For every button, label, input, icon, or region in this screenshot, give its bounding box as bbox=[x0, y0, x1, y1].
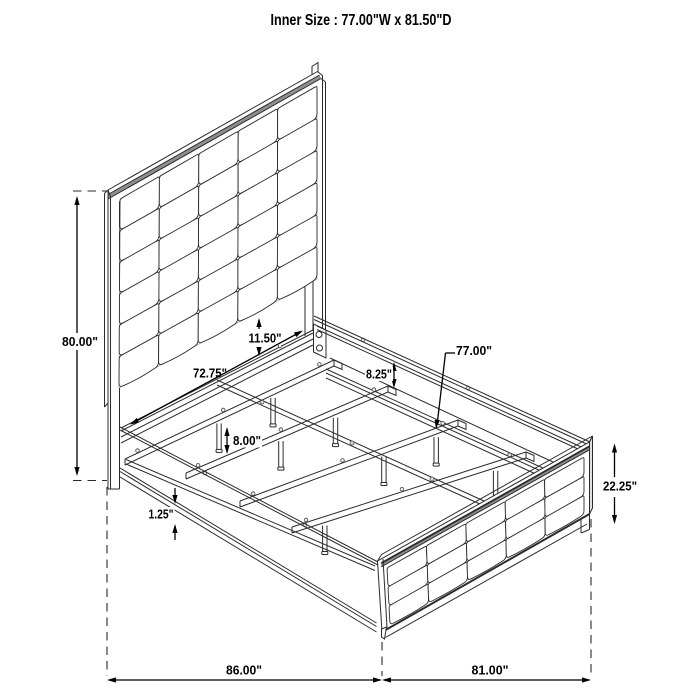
svg-text:77.00": 77.00" bbox=[456, 343, 492, 358]
svg-text:Inner Size : 77.00"W x 81.50"D: Inner Size : 77.00"W x 81.50"D bbox=[271, 12, 452, 29]
svg-text:8.25": 8.25" bbox=[366, 367, 392, 382]
svg-text:86.00": 86.00" bbox=[226, 663, 262, 678]
svg-text:1.25": 1.25" bbox=[149, 507, 174, 522]
svg-text:11.50": 11.50" bbox=[249, 331, 282, 346]
svg-text:80.00": 80.00" bbox=[62, 334, 98, 349]
svg-text:22.25": 22.25" bbox=[603, 479, 637, 494]
svg-text:81.00": 81.00" bbox=[472, 663, 509, 678]
svg-text:72.75": 72.75" bbox=[193, 366, 227, 381]
svg-text:8.00": 8.00" bbox=[233, 433, 261, 448]
